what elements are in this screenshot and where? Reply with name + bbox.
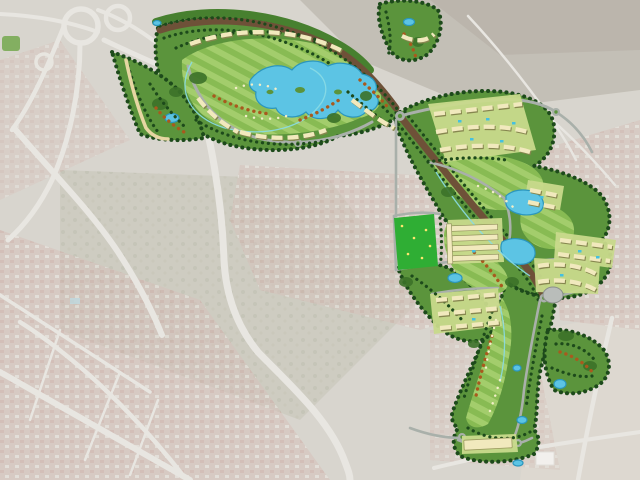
pond [513, 365, 521, 371]
canopy [399, 277, 413, 287]
pond [448, 274, 462, 283]
island [334, 90, 342, 95]
pond [153, 21, 161, 26]
pond [554, 380, 566, 389]
masterplan-aerial-svg [0, 0, 640, 480]
canopy [169, 87, 183, 97]
pool [578, 250, 582, 253]
pool [596, 256, 600, 259]
speck [413, 237, 416, 240]
speck [421, 257, 424, 260]
canopy [327, 113, 341, 123]
offsite-park [2, 36, 20, 51]
pool [560, 274, 564, 277]
canopy [360, 91, 372, 101]
roundabout [395, 111, 405, 121]
roundabout [552, 108, 560, 116]
pool [472, 250, 476, 253]
canopy [558, 331, 574, 341]
pool [458, 120, 462, 123]
canopy [189, 72, 207, 84]
pool [500, 140, 504, 143]
building-block [451, 224, 497, 231]
pool [470, 138, 474, 141]
building-block [453, 254, 499, 261]
round-gray-building [543, 287, 563, 303]
pool [512, 122, 516, 125]
canopy [441, 187, 455, 197]
south-long-building [464, 438, 512, 450]
sports-field [394, 214, 438, 270]
pool [486, 118, 490, 121]
pond [517, 417, 527, 424]
pond [404, 19, 415, 26]
building-block [446, 224, 452, 264]
pool [472, 318, 476, 321]
canopy [505, 277, 519, 287]
map-canvas [0, 0, 640, 480]
canopy [468, 340, 480, 348]
speck [425, 229, 428, 232]
island [267, 90, 274, 94]
speck [407, 253, 410, 256]
pond [513, 460, 523, 466]
building-block [452, 234, 498, 241]
sports-field-group [394, 214, 438, 270]
speck [429, 245, 432, 248]
speck [401, 225, 404, 228]
pool [540, 196, 544, 199]
island [295, 87, 305, 93]
